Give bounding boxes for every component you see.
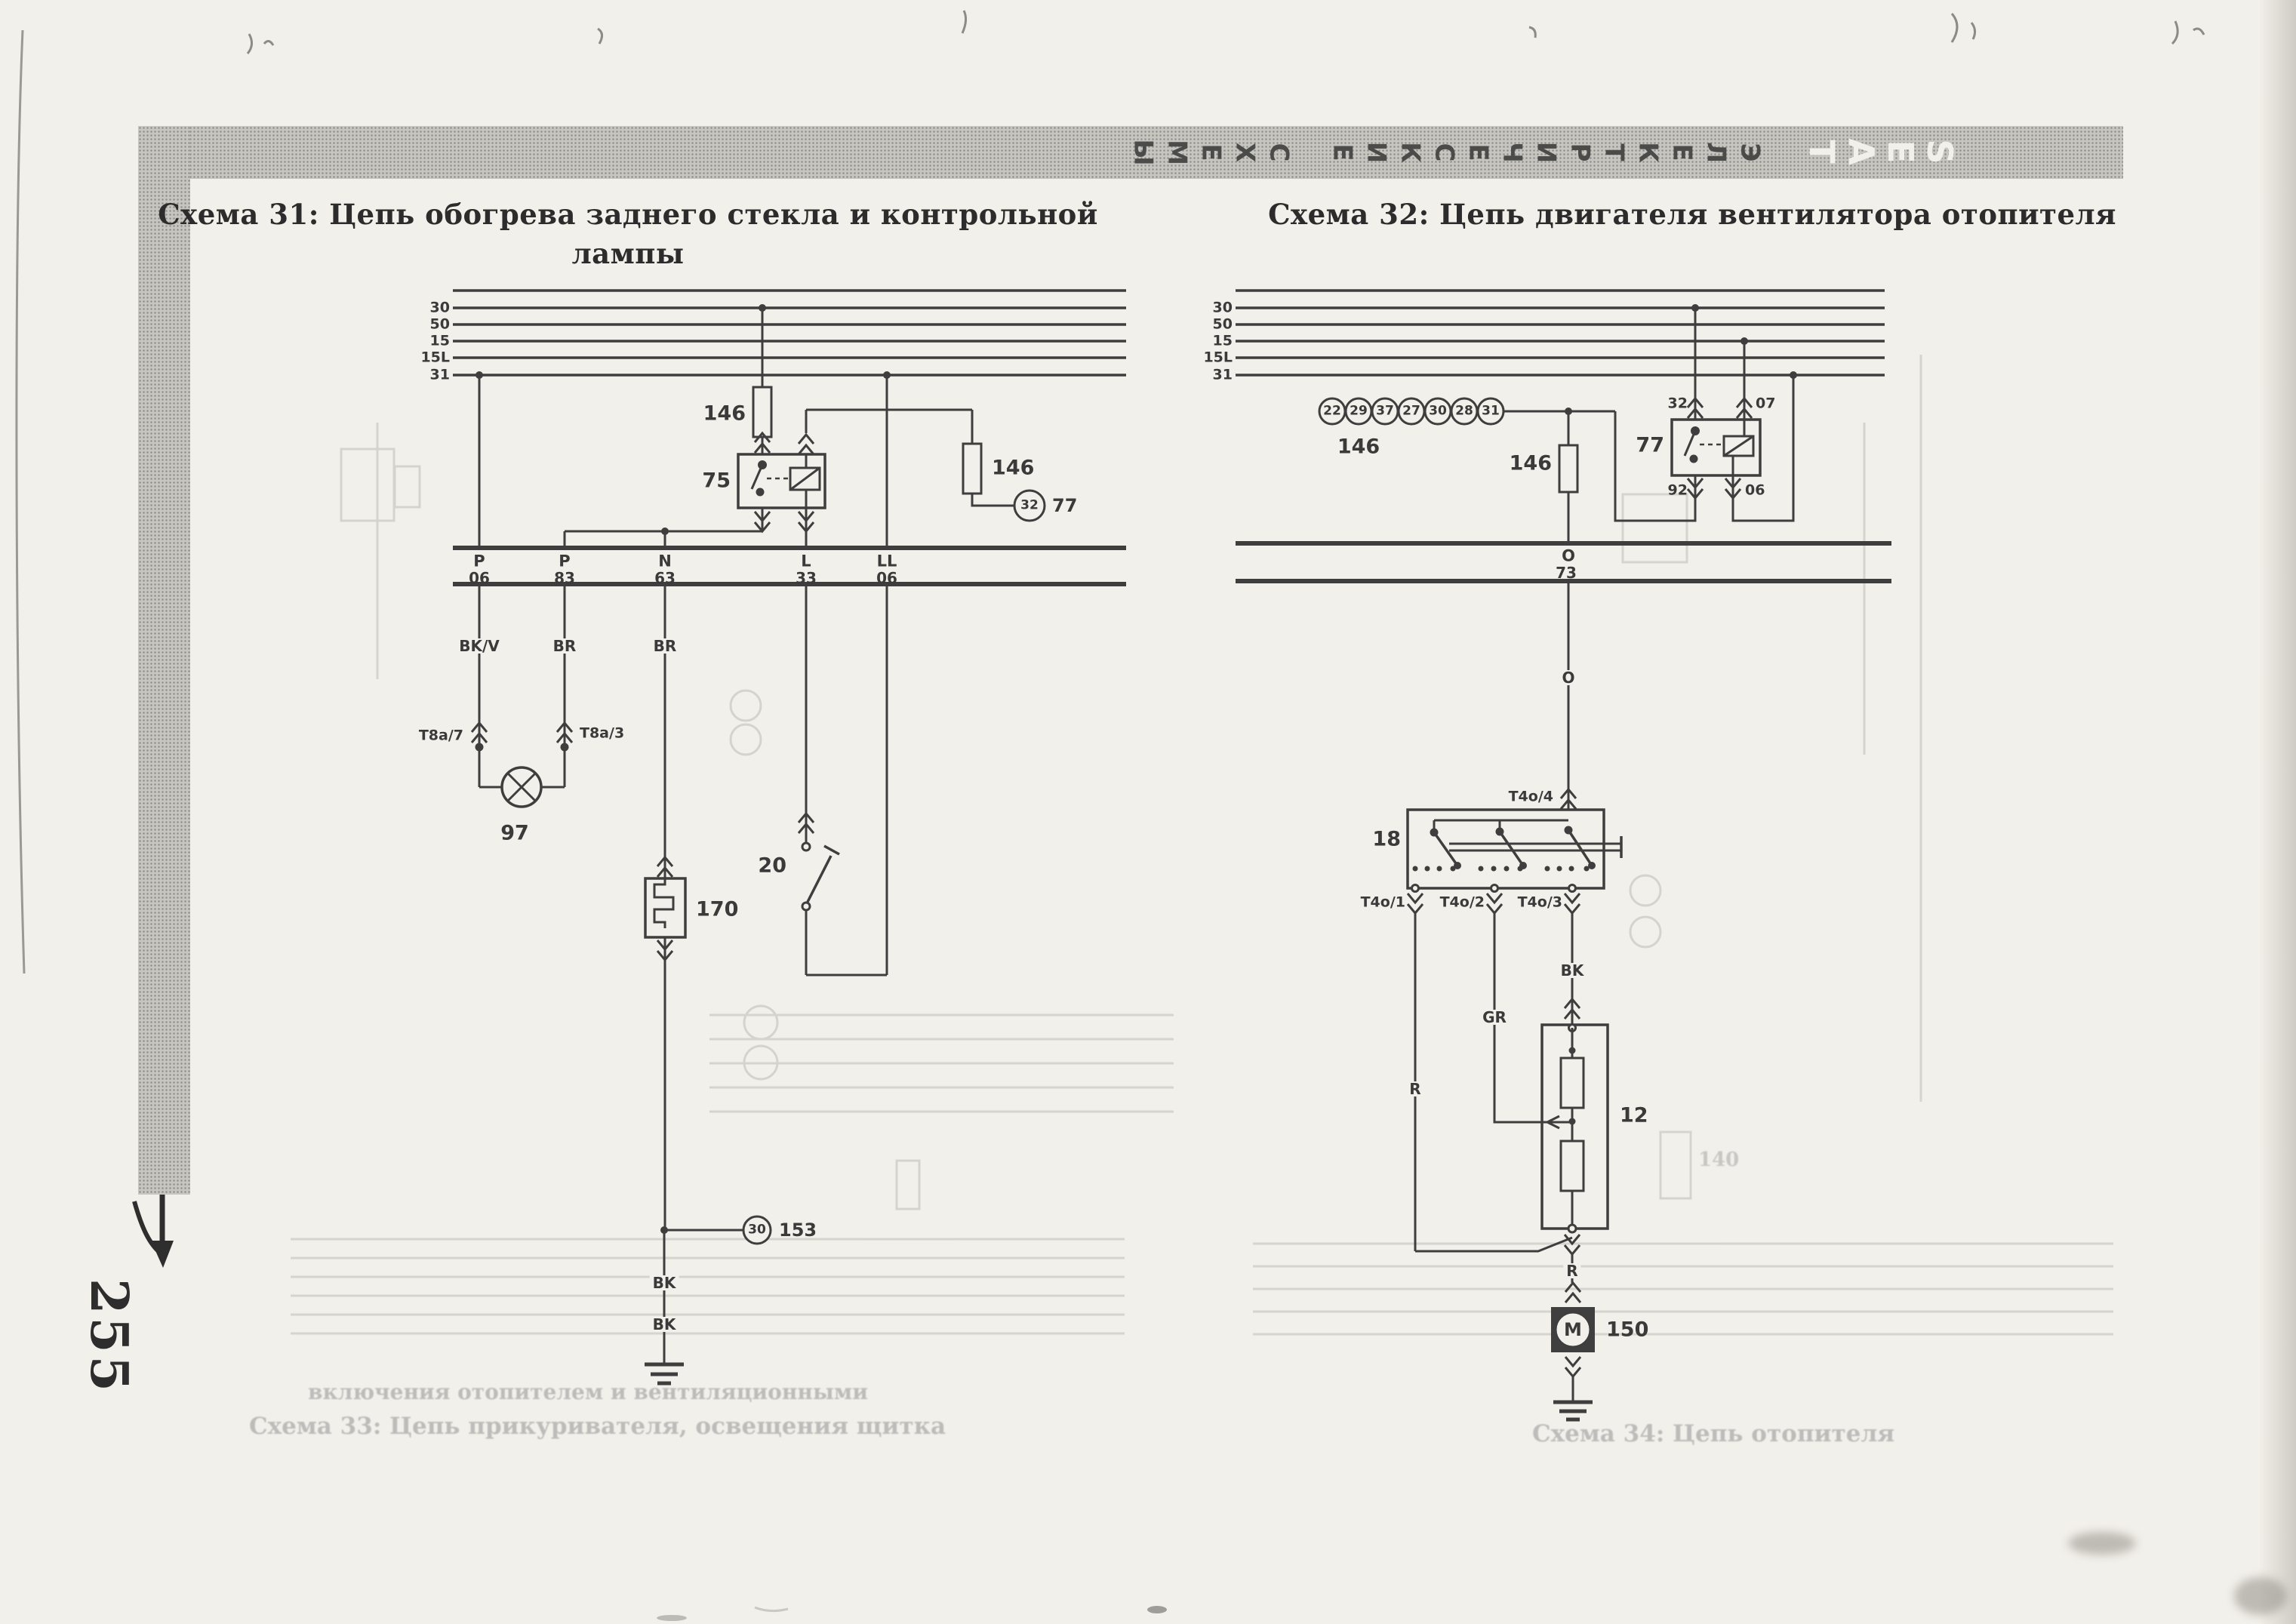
bus-label-15: 15 (1213, 334, 1233, 349)
ring-terminal-number: 30 (1429, 405, 1447, 418)
relay-icon (738, 454, 825, 508)
connector-number: 73 (1556, 565, 1577, 580)
fuse-icon (753, 387, 771, 437)
bleed-through-text: 140 (1698, 1149, 1739, 1171)
ring-terminal-number: 30 (748, 1224, 766, 1237)
plug-label: T4o/2 (1440, 896, 1485, 910)
page-number: 255 (78, 1278, 139, 1395)
banner-letter: Ч (1497, 136, 1528, 170)
wire-color-label: BK/V (456, 638, 503, 654)
bus-label-15L: 15L (420, 351, 450, 365)
plug-label: T4o/3 (1518, 896, 1562, 910)
connector-letter: O (1562, 549, 1575, 564)
component-ref-77: 77 (1052, 497, 1077, 515)
switch-ref: 18 (1372, 829, 1401, 850)
relay-ref: 75 (702, 471, 731, 491)
lamp-icon (502, 767, 541, 807)
ring-terminal-number: 27 (1402, 405, 1420, 418)
connector-letter: L (801, 554, 811, 570)
wire-color-label: GR (1479, 1010, 1510, 1025)
fuse-ref: 146 (703, 404, 746, 424)
relay-ref: 77 (1636, 435, 1664, 456)
scan-speck (657, 1615, 687, 1621)
banner-letter: С (1430, 136, 1460, 170)
page-edge-line (17, 30, 24, 973)
wire-color-label: BK (650, 1275, 679, 1290)
ring-terminal-number: 28 (1455, 405, 1473, 418)
connector-letter: P (559, 554, 570, 570)
banner-letter: К (1633, 136, 1664, 170)
bleed-through-text: Схема 33: Цепь прикуривателя, освещения … (249, 1413, 946, 1440)
wire-color-label: BK (650, 1317, 679, 1332)
relay-terminal: 92 (1668, 484, 1688, 498)
banner-letter: Е (1328, 136, 1358, 170)
junction-dots (476, 304, 891, 1234)
bus-label-31: 31 (1213, 368, 1233, 383)
connector-number: 06 (876, 571, 897, 586)
plug-label: T8a/7 (419, 729, 463, 743)
relay-terminal: 07 (1756, 397, 1775, 411)
resistor-pack-icon (1542, 1025, 1608, 1229)
wire-color-label: BK (1558, 963, 1587, 978)
banner-letter: Х (1230, 136, 1260, 170)
wire-color-label: BR (651, 638, 680, 654)
ring-terminal-number: 31 (1482, 405, 1500, 418)
plug-label: T8a/3 (580, 727, 624, 741)
resistor-ref: 12 (1620, 1106, 1648, 1126)
connector-letter: LL (877, 554, 897, 570)
scan-speck (1147, 1606, 1167, 1613)
motor-ref: 150 (1606, 1320, 1648, 1340)
banner-letter: Р (1565, 136, 1596, 170)
connector-letter: N (658, 554, 672, 570)
brand-letter: S (1919, 132, 1960, 171)
banner-letter: Е (1463, 136, 1494, 170)
schema32-title: Схема 32: Цепь двигателя вентилятора ото… (1268, 201, 2116, 229)
connector-number: 83 (554, 571, 575, 586)
brand-letter: E (1880, 132, 1921, 171)
scan-artifacts (248, 11, 2204, 1611)
wire-color-label: BR (550, 638, 580, 654)
connector-number: 06 (469, 571, 490, 586)
banner-letter: С (1264, 136, 1294, 170)
ring-terminal-number: 37 (1376, 405, 1394, 418)
connector-letter: P (473, 554, 485, 570)
brand-letter: A (1841, 132, 1882, 171)
banner-letter: Е (1196, 136, 1226, 170)
banner-rotated-word: С Х Е М Ы (1126, 130, 1296, 175)
ring-terminal-number: 32 (1020, 500, 1039, 512)
schema31-title-line1: Схема 31: Цепь обогрева заднего стекла и… (158, 201, 1098, 229)
banner-letter: К (1396, 136, 1426, 170)
scanned-manual-page: С Х Е М Ы Э Л Е К Т Р И Ч Е С К И Е S E … (0, 0, 2296, 1624)
relay-terminal: 06 (1745, 484, 1765, 498)
banner-letter: И (1531, 136, 1562, 170)
ground-icon (1553, 1402, 1593, 1419)
bus-label-50: 50 (1213, 318, 1233, 332)
plug-label: T4o/1 (1361, 896, 1405, 910)
bus-label-30: 30 (1213, 301, 1233, 315)
scan-smudge (2068, 1532, 2136, 1555)
heater-element-icon (645, 878, 685, 937)
motor-m-label: M (1564, 1321, 1582, 1339)
switch-icon (799, 814, 839, 910)
fuse-icon (963, 444, 981, 494)
scan-smudge (2234, 1577, 2287, 1615)
banner-letter: Л (1701, 136, 1731, 170)
banner-brand-logo: S E A T (1802, 127, 1959, 177)
banner-letter: Ы (1128, 136, 1159, 170)
connector-number: 33 (796, 571, 817, 586)
banner-rotated-word: Э Л Е К Т Р И Ч Е С К И Е (1325, 130, 1767, 175)
bus-label-30: 30 (430, 301, 450, 315)
bus-lines-left (453, 291, 1126, 375)
wire-color-label: O (1559, 670, 1577, 685)
bus-label-50: 50 (430, 318, 450, 332)
banner-letter: Е (1667, 136, 1697, 170)
blower-switch-icon (1408, 810, 1621, 892)
banner-letter: Э (1735, 136, 1765, 170)
bus-lines-right (1236, 291, 1885, 375)
connector-number: 63 (654, 571, 676, 586)
component-ref-153: 153 (779, 1221, 817, 1239)
chain-ref: 146 (1337, 437, 1380, 457)
bleedthrough-artifacts (291, 355, 2113, 1334)
page-edge-shadow (2258, 0, 2296, 1624)
relay-icon (1672, 420, 1760, 475)
banner-letter: М (1162, 136, 1193, 170)
bus-label-15: 15 (430, 334, 450, 349)
switch-ref: 20 (758, 856, 786, 876)
element-ref: 170 (696, 900, 738, 920)
fuse-ref: 146 (992, 458, 1034, 478)
bleed-through-text: включения отопителем и вентиляционными (308, 1379, 868, 1404)
schema32-lineart (1236, 291, 1891, 1419)
fuse-icon (1559, 445, 1577, 492)
wire-color-label: R (1406, 1081, 1423, 1097)
banner-letter: И (1362, 136, 1392, 170)
ring-terminal-number: 29 (1350, 405, 1368, 418)
plug-label: T4o/4 (1509, 790, 1553, 804)
fuse-ref: 146 (1510, 454, 1552, 474)
wire-color-label: R (1563, 1263, 1580, 1278)
left-margin-strip (138, 126, 190, 1195)
bleed-through-text: Схема 34: Цепь отопителя (1532, 1420, 1894, 1447)
schema31-title-line2: лампы (572, 240, 685, 268)
relay-terminal: 32 (1668, 397, 1688, 411)
bus-label-15L: 15L (1203, 351, 1233, 365)
banner-letter: Т (1599, 136, 1630, 170)
ring-terminal-number: 22 (1323, 405, 1341, 418)
lamp-ref: 97 (500, 823, 529, 844)
bus-label-31: 31 (430, 368, 450, 383)
brand-letter: T (1802, 132, 1842, 171)
